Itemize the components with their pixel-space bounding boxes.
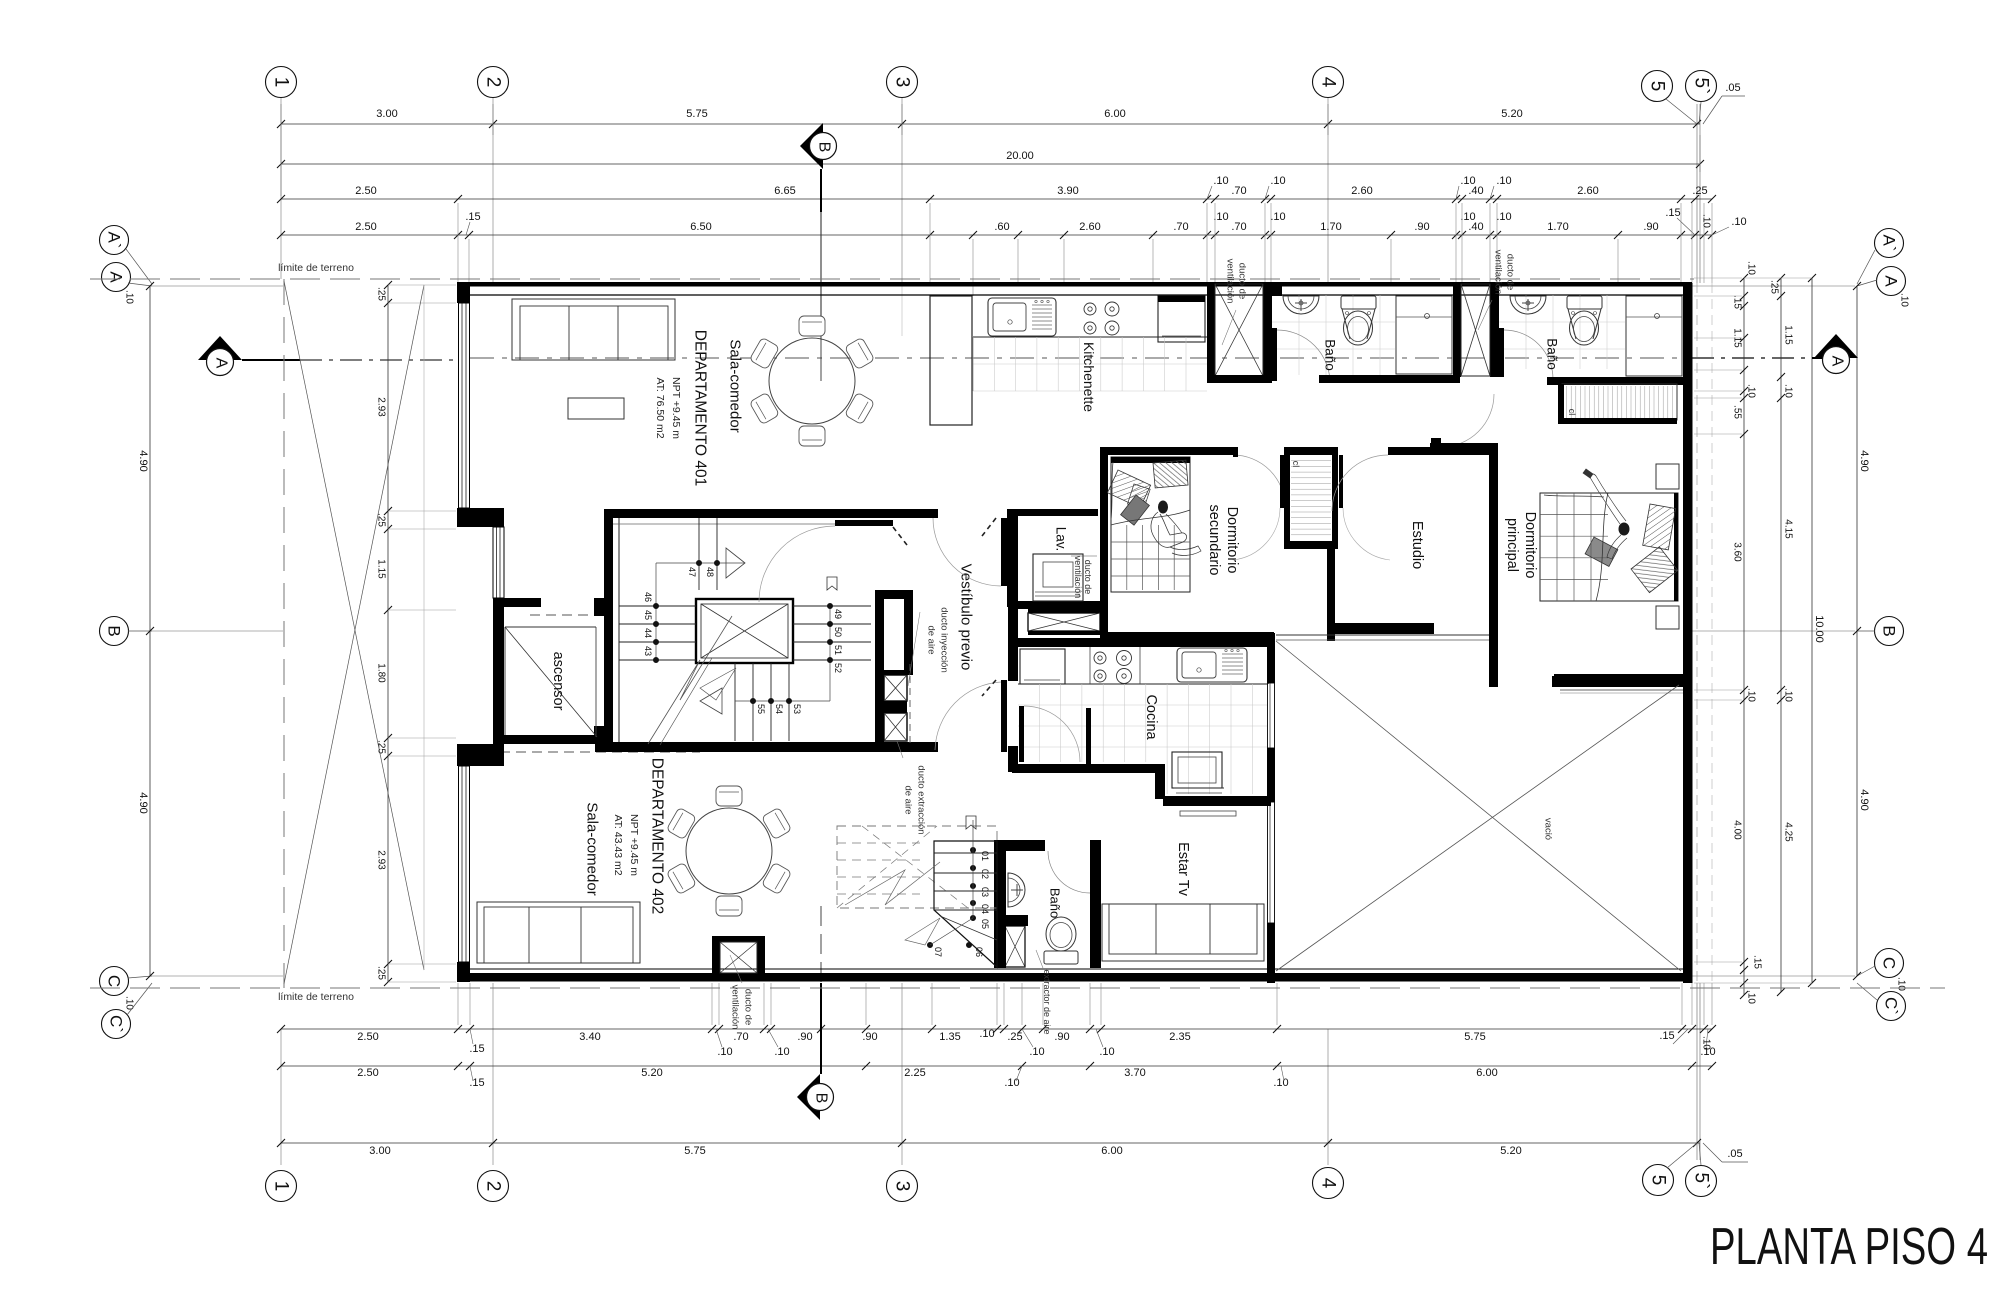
svg-text:de aire: de aire	[926, 625, 937, 654]
svg-text:A`: A`	[105, 232, 124, 249]
svg-text:4.25: 4.25	[1783, 822, 1794, 842]
svg-text:de aire: de aire	[903, 785, 914, 814]
svg-text:4: 4	[1318, 1178, 1339, 1189]
svg-text:ducto extracción: ducto extracción	[916, 765, 927, 834]
svg-text:NPT +9.45 m: NPT +9.45 m	[628, 814, 640, 876]
svg-text:.10: .10	[1029, 1046, 1044, 1058]
svg-text:.10: .10	[1701, 1036, 1712, 1050]
svg-text:B: B	[813, 1093, 830, 1104]
svg-text:3.00: 3.00	[369, 1145, 390, 1157]
svg-text:.10: .10	[774, 1046, 789, 1058]
svg-text:.15: .15	[1665, 207, 1680, 219]
svg-text:.10: .10	[1783, 688, 1794, 702]
svg-text:Cocina: Cocina	[1143, 694, 1159, 740]
svg-text:5.75: 5.75	[686, 108, 707, 120]
svg-text:5`: 5`	[1691, 1173, 1712, 1190]
svg-text:1.15: 1.15	[1783, 325, 1794, 345]
svg-text:1.70: 1.70	[1547, 221, 1568, 233]
svg-text:.10: .10	[1270, 211, 1285, 223]
svg-text:43: 43	[643, 646, 653, 656]
svg-text:ventilación: ventilación	[1225, 259, 1236, 304]
svg-text:6.65: 6.65	[774, 185, 795, 197]
svg-text:2.60: 2.60	[1351, 185, 1372, 197]
svg-text:2.60: 2.60	[1577, 185, 1598, 197]
svg-text:52: 52	[833, 663, 843, 673]
svg-text:07: 07	[933, 947, 943, 957]
svg-text:Sala-comedor: Sala-comedor	[584, 802, 601, 895]
svg-text:.10: .10	[1899, 293, 1910, 307]
svg-text:.10: .10	[1731, 216, 1746, 228]
svg-text:.70: .70	[1231, 185, 1246, 197]
svg-text:6.50: 6.50	[690, 221, 711, 233]
svg-text:límite de terreno: límite de terreno	[278, 991, 354, 1003]
svg-text:.15: .15	[1752, 955, 1763, 969]
svg-text:10.00: 10.00	[1813, 615, 1825, 643]
svg-text:4.90: 4.90	[1858, 789, 1870, 810]
svg-text:C: C	[1880, 957, 1899, 969]
svg-text:.10: .10	[1746, 384, 1757, 398]
svg-text:.10: .10	[1213, 211, 1228, 223]
svg-text:02: 02	[980, 869, 990, 879]
svg-text:54: 54	[774, 704, 784, 714]
svg-text:2: 2	[483, 1181, 504, 1192]
svg-text:Baño: Baño	[1048, 888, 1063, 918]
svg-text:46: 46	[643, 592, 653, 602]
svg-text:secundario: secundario	[1206, 505, 1222, 576]
svg-text:Lav.: Lav.	[1054, 527, 1069, 552]
svg-text:.10: .10	[1496, 175, 1511, 187]
svg-text:ducto de: ducto de	[743, 989, 754, 1025]
svg-text:2.35: 2.35	[1169, 1031, 1190, 1043]
svg-text:.10: .10	[979, 1028, 994, 1040]
svg-text:.25: .25	[1692, 185, 1707, 197]
svg-text:5.20: 5.20	[1500, 1145, 1521, 1157]
svg-text:49: 49	[833, 609, 843, 619]
svg-text:53: 53	[792, 704, 802, 714]
svg-text:.10: .10	[1496, 211, 1511, 223]
svg-text:4.90: 4.90	[137, 450, 149, 471]
svg-text:.15: .15	[465, 211, 480, 223]
svg-text:.15: .15	[1659, 1030, 1674, 1042]
svg-text:4.00: 4.00	[1732, 820, 1743, 840]
svg-text:2.60: 2.60	[1079, 221, 1100, 233]
svg-text:55: 55	[756, 704, 766, 714]
svg-text:extractor de aire: extractor de aire	[1042, 969, 1052, 1034]
svg-text:.90: .90	[797, 1031, 812, 1043]
svg-text:1.80: 1.80	[376, 663, 387, 683]
svg-text:Baño: Baño	[1323, 339, 1338, 371]
svg-text:Sala-comedor: Sala-comedor	[727, 339, 744, 432]
svg-text:5.20: 5.20	[641, 1067, 662, 1079]
svg-text:límite de terreno: límite de terreno	[278, 262, 354, 274]
svg-text:1.35: 1.35	[939, 1031, 960, 1043]
svg-text:2.50: 2.50	[357, 1031, 378, 1043]
svg-text:.10: .10	[1270, 175, 1285, 187]
svg-text:2.93: 2.93	[376, 850, 387, 870]
svg-text:4.90: 4.90	[1858, 450, 1870, 471]
svg-text:.10: .10	[1783, 384, 1794, 398]
svg-text:.70: .70	[1173, 221, 1188, 233]
svg-text:.15: .15	[469, 1077, 484, 1089]
svg-text:.90: .90	[1054, 1031, 1069, 1043]
svg-text:B: B	[1880, 625, 1899, 636]
svg-text:C: C	[105, 975, 124, 987]
svg-text:5.75: 5.75	[1464, 1031, 1485, 1043]
svg-text:ducto de: ducto de	[1237, 263, 1248, 299]
svg-text:B: B	[816, 142, 833, 153]
svg-text:ascensor: ascensor	[550, 652, 566, 711]
svg-text:06: 06	[974, 947, 984, 957]
svg-text:.25: .25	[376, 287, 387, 301]
svg-text:2.93: 2.93	[376, 397, 387, 417]
svg-text:.10: .10	[1213, 175, 1228, 187]
svg-text:3.70: 3.70	[1124, 1067, 1145, 1079]
svg-text:5`: 5`	[1691, 78, 1712, 95]
svg-text:vació: vació	[1543, 818, 1554, 840]
svg-text:.10: .10	[1004, 1077, 1019, 1089]
svg-text:1.15: 1.15	[376, 559, 387, 579]
svg-text:.10: .10	[1460, 175, 1475, 187]
svg-text:2.25: 2.25	[904, 1067, 925, 1079]
svg-text:20.00: 20.00	[1006, 150, 1034, 162]
svg-text:2.50: 2.50	[355, 185, 376, 197]
svg-text:3: 3	[892, 1181, 913, 1192]
svg-text:3: 3	[892, 77, 913, 88]
svg-text:Dormitorio: Dormitorio	[1224, 507, 1240, 574]
svg-text:DEPARTAMENTO 401: DEPARTAMENTO 401	[692, 330, 709, 486]
svg-text:05: 05	[980, 919, 990, 929]
svg-text:44: 44	[643, 628, 653, 638]
svg-text:2.50: 2.50	[357, 1067, 378, 1079]
svg-text:5.20: 5.20	[1501, 108, 1522, 120]
svg-text:1: 1	[271, 77, 292, 88]
svg-text:.90: .90	[1414, 221, 1429, 233]
svg-text:03: 03	[980, 887, 990, 897]
svg-text:cl: cl	[1567, 409, 1577, 416]
svg-text:.15: .15	[1732, 295, 1743, 309]
svg-text:ventilación: ventilación	[1493, 250, 1504, 295]
svg-text:AT: 43.43 m2: AT: 43.43 m2	[612, 814, 624, 875]
svg-text:.55: .55	[1732, 405, 1743, 419]
svg-text:Estar Tv: Estar Tv	[1175, 842, 1191, 896]
svg-text:3.60: 3.60	[1732, 542, 1743, 562]
svg-text:1: 1	[271, 1181, 292, 1192]
svg-text:.10: .10	[124, 290, 135, 304]
svg-text:.10: .10	[1746, 261, 1757, 275]
svg-text:.25: .25	[1769, 280, 1780, 294]
svg-text:.10: .10	[1273, 1077, 1288, 1089]
svg-text:.10: .10	[1746, 688, 1757, 702]
svg-text:.15: .15	[469, 1043, 484, 1055]
svg-text:A: A	[1882, 275, 1901, 287]
svg-text:6.00: 6.00	[1101, 1145, 1122, 1157]
svg-text:A: A	[1829, 356, 1846, 367]
svg-text:.25: .25	[376, 740, 387, 754]
svg-text:2.50: 2.50	[355, 221, 376, 233]
svg-text:.05: .05	[1727, 1148, 1742, 1160]
svg-text:cl: cl	[1291, 461, 1301, 468]
svg-text:ducto de: ducto de	[1505, 254, 1516, 290]
svg-text:Baño: Baño	[1545, 338, 1560, 370]
svg-text:C`: C`	[107, 1015, 126, 1033]
svg-text:.90: .90	[862, 1031, 877, 1043]
svg-text:principal: principal	[1504, 518, 1520, 572]
svg-text:C`: C`	[1882, 997, 1901, 1015]
svg-text:.10: .10	[1460, 211, 1475, 223]
svg-text:50: 50	[833, 627, 843, 637]
svg-text:PLANTA PISO 4: PLANTA PISO 4	[1710, 1218, 1988, 1276]
svg-text:Dormitorio: Dormitorio	[1522, 512, 1538, 579]
svg-text:1.70: 1.70	[1320, 221, 1341, 233]
svg-text:DEPARTAMENTO 402: DEPARTAMENTO 402	[649, 758, 666, 914]
svg-text:3.90: 3.90	[1057, 185, 1078, 197]
svg-text:B: B	[105, 625, 124, 636]
svg-text:ducto inyección: ducto inyección	[939, 607, 950, 672]
svg-text:4: 4	[1318, 77, 1339, 88]
svg-text:01: 01	[980, 851, 990, 861]
svg-text:.90: .90	[1643, 221, 1658, 233]
svg-text:.70: .70	[733, 1031, 748, 1043]
svg-text:6.00: 6.00	[1476, 1067, 1497, 1079]
svg-text:AT: 76.50 m2: AT: 76.50 m2	[654, 377, 666, 438]
svg-text:3.40: 3.40	[579, 1031, 600, 1043]
svg-text:.10: .10	[1746, 990, 1757, 1004]
svg-text:.10: .10	[1099, 1046, 1114, 1058]
svg-text:48: 48	[705, 567, 715, 577]
svg-text:5: 5	[1647, 81, 1668, 92]
svg-text:51: 51	[833, 645, 843, 655]
svg-text:A`: A`	[1880, 235, 1899, 252]
svg-text:A: A	[107, 271, 126, 283]
svg-text:.05: .05	[1725, 82, 1740, 94]
svg-text:3.00: 3.00	[376, 108, 397, 120]
svg-text:A: A	[213, 358, 230, 369]
svg-text:.60: .60	[994, 221, 1009, 233]
svg-text:ventilación: ventilación	[730, 985, 741, 1030]
svg-text:2: 2	[483, 77, 504, 88]
svg-text:.10: .10	[1701, 214, 1712, 228]
svg-text:.10: .10	[1896, 977, 1907, 991]
svg-text:.70: .70	[1231, 221, 1246, 233]
svg-text:45: 45	[643, 610, 653, 620]
svg-text:4.15: 4.15	[1783, 519, 1794, 539]
svg-text:47: 47	[687, 567, 697, 577]
svg-text:5: 5	[1648, 1175, 1669, 1186]
svg-text:6.00: 6.00	[1104, 108, 1125, 120]
svg-text:ducto de: ducto de	[1083, 560, 1093, 595]
svg-text:04: 04	[980, 904, 990, 914]
svg-text:.25: .25	[1007, 1031, 1022, 1043]
svg-text:ventilación: ventilación	[1073, 556, 1083, 599]
svg-text:Estudio: Estudio	[1409, 521, 1425, 569]
svg-text:4.90: 4.90	[137, 792, 149, 813]
svg-text:NPT +9.45 m: NPT +9.45 m	[670, 377, 682, 439]
svg-text:5.75: 5.75	[684, 1145, 705, 1157]
svg-text:.10: .10	[717, 1046, 732, 1058]
svg-text:Kitchenette: Kitchenette	[1081, 342, 1097, 412]
svg-text:.10: .10	[124, 996, 135, 1010]
svg-text:.25: .25	[376, 966, 387, 980]
